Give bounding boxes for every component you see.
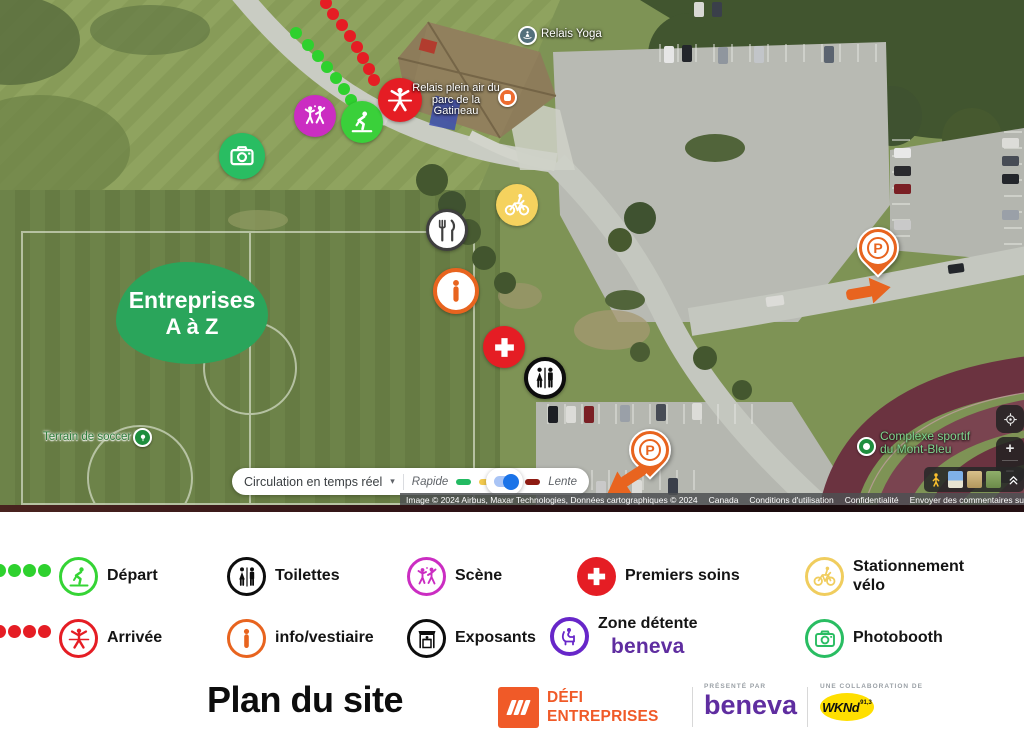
traffic-seg-green: [456, 479, 471, 485]
legend-label: Premiers soins: [625, 567, 740, 585]
traffic-seg-darkred: [525, 479, 540, 485]
medical-cross-icon: [492, 335, 517, 360]
traffic-toggle[interactable]: [486, 468, 523, 495]
yoga-poi-icon[interactable]: [518, 26, 537, 45]
relais-poi-icon[interactable]: [498, 88, 517, 107]
trail-dot-green: [330, 72, 342, 84]
finish-line-icon: [59, 619, 98, 658]
legend-label: Stationnement vélo: [853, 558, 971, 595]
medical-cross-icon: [577, 557, 616, 596]
camera-icon: [805, 619, 844, 658]
trail-dot-red: [344, 30, 356, 42]
toilets-marker: [524, 357, 566, 399]
bike-icon: [805, 557, 844, 596]
bike-parking-marker: [496, 184, 538, 226]
camera-icon: [228, 142, 256, 170]
entreprises-line2: A à Z: [166, 314, 219, 339]
legend-trail-red: [38, 625, 51, 638]
privacy-link[interactable]: Confidentialité: [845, 495, 899, 505]
lounge-chair-icon: [550, 617, 589, 656]
legend-label: Photobooth: [853, 629, 943, 647]
fork-knife-icon: [435, 218, 460, 243]
divider: [692, 687, 693, 727]
imagery-credit: Image © 2024 Airbus, Maxar Technologies,…: [406, 495, 698, 505]
trail-dot-green: [312, 50, 324, 62]
legend-label: info/vestiaire: [275, 629, 374, 647]
info-icon: [443, 278, 469, 304]
poi-label-relais-yoga[interactable]: Relais Yoga: [541, 28, 602, 40]
map-bottom-edge: [0, 505, 1024, 512]
divider: [403, 474, 404, 490]
kiosk-icon: [407, 619, 446, 658]
legend-item-zone-detente: Zone détente beneva: [550, 615, 698, 657]
legend-item-depart: Départ: [59, 557, 158, 596]
legend-item-toilettes: Toilettes: [227, 557, 340, 596]
beneva-logo-block: PRÉSENTÉ PAR beneva: [704, 683, 797, 719]
traffic-label[interactable]: Circulation en temps réel: [244, 475, 382, 489]
legend-trail-red: [0, 625, 6, 638]
toggle-track[interactable]: [494, 476, 516, 487]
defi-line2: ENTREPRISES: [547, 708, 659, 727]
legend-trail-green: [23, 564, 36, 577]
legend-item-stationnement-velo: Stationnement vélo: [805, 557, 971, 596]
legend-item-info-vestiaire: info/vestiaire: [227, 619, 374, 658]
imagery-thumbnail[interactable]: [986, 471, 1001, 488]
toilets-icon: [532, 365, 558, 391]
attribution-canada[interactable]: Canada: [709, 495, 739, 505]
presented-by-label: PRÉSENTÉ PAR: [704, 683, 766, 690]
wknd-logo: WKNd 91,3: [820, 693, 874, 721]
divider: [807, 687, 808, 727]
beneva-wordmark: beneva: [704, 691, 797, 719]
traffic-slow-label: Lente: [548, 476, 577, 488]
info-marker: [433, 268, 479, 314]
poi-label-relais-plein-air[interactable]: Relais plein air du parc de la Gatineau: [411, 83, 501, 118]
parking-pin-icon: P: [639, 439, 661, 461]
map-canvas[interactable]: P P Entreprises A à Z Relais Yoga Relais…: [0, 0, 1024, 512]
trail-dot-green: [321, 61, 333, 73]
toilets-icon: [227, 557, 266, 596]
bike-icon: [503, 191, 531, 219]
poi-line1: Relais plein air du: [412, 82, 499, 94]
legend-item-exposants: Exposants: [407, 619, 536, 658]
legend-item-arrivee: Arrivée: [59, 619, 162, 658]
legend-label: Zone détente: [598, 615, 698, 633]
food-marker: [426, 209, 468, 251]
ski-start-icon: [349, 109, 375, 135]
legend-item-photobooth: Photobooth: [805, 619, 943, 658]
parking-pin-icon: P: [867, 237, 889, 259]
imagery-thumbnail[interactable]: [967, 471, 982, 488]
legend-label: Départ: [107, 567, 158, 585]
legend-item-scene: Scène: [407, 557, 502, 596]
wknd-wordmark: WKNd: [822, 700, 859, 715]
legend-label: Scène: [455, 567, 502, 585]
poi-line2: parc de la Gatineau: [432, 94, 480, 118]
locate-icon: [1003, 412, 1018, 427]
pegman-icon[interactable]: [928, 472, 944, 488]
toggle-knob[interactable]: [503, 474, 519, 490]
site-plan-poster: P P Entreprises A à Z Relais Yoga Relais…: [0, 0, 1024, 749]
traffic-fast-label: Rapide: [412, 476, 448, 488]
sports-complex-poi-icon[interactable]: [857, 437, 876, 456]
page-title: Plan du site: [207, 679, 403, 721]
first-aid-marker: [483, 326, 525, 368]
poi-label-terrain-soccer[interactable]: Terrain de soccer 5: [43, 431, 141, 443]
trail-dot-red: [368, 74, 380, 86]
legend-trail-green: [38, 564, 51, 577]
trail-dot-red: [336, 19, 348, 31]
scene-marker: [294, 95, 336, 137]
legend-item-premiers-soins: Premiers soins: [577, 557, 740, 596]
legend-label: Toilettes: [275, 567, 340, 585]
entreprises-line1: Entreprises: [129, 287, 256, 313]
legend-trail-green: [0, 564, 6, 577]
legend-label: Arrivée: [107, 629, 162, 647]
photobooth-marker: [219, 133, 265, 179]
collapse-chevrons-icon[interactable]: [1007, 473, 1020, 486]
defi-slashes-icon: [498, 687, 539, 728]
trail-dot-red: [327, 8, 339, 20]
trail-dot-green: [338, 83, 350, 95]
wknd-frequency: 91,3: [860, 700, 872, 706]
beneva-wordmark: beneva: [611, 636, 685, 657]
collaboration-label: UNE COLLABORATION DE: [820, 683, 923, 690]
legend-trail-red: [8, 625, 21, 638]
depart-marker: [341, 101, 383, 143]
defi-line1: DÉFI: [547, 689, 659, 708]
poi-line2: du Mont-Bleu: [880, 442, 951, 456]
imagery-thumbnail[interactable]: [948, 471, 963, 488]
poi-label-complexe-sportif[interactable]: Complexe sportif du Mont-Bleu: [880, 430, 970, 455]
zoom-in-button[interactable]: +: [996, 437, 1024, 460]
traffic-layer-control[interactable]: Circulation en temps réel ▾ Rapide Lente: [232, 468, 589, 495]
defi-entreprises-logo: DÉFI ENTREPRISES: [498, 687, 659, 728]
info-icon: [227, 619, 266, 658]
wknd-logo-block: UNE COLLABORATION DE WKNd 91,3: [820, 683, 923, 721]
feedback-link[interactable]: Envoyer des commentaires sur le produit: [910, 495, 1024, 505]
trail-dot-green: [302, 39, 314, 51]
dancers-icon: [302, 103, 328, 129]
legend-trail-red: [23, 625, 36, 638]
dancers-icon: [407, 557, 446, 596]
legend-trail-green: [8, 564, 21, 577]
finish-line-icon: [386, 86, 414, 114]
trail-dot-green: [290, 27, 302, 39]
legend-label: Exposants: [455, 629, 536, 647]
chevron-down-icon[interactable]: ▾: [390, 476, 395, 487]
terms-link[interactable]: Conditions d'utilisation: [749, 495, 833, 505]
streetview-imagery-bar[interactable]: [924, 467, 1024, 492]
ski-start-icon: [59, 557, 98, 596]
my-location-button[interactable]: [996, 405, 1024, 433]
park-poi-icon[interactable]: [133, 428, 152, 447]
